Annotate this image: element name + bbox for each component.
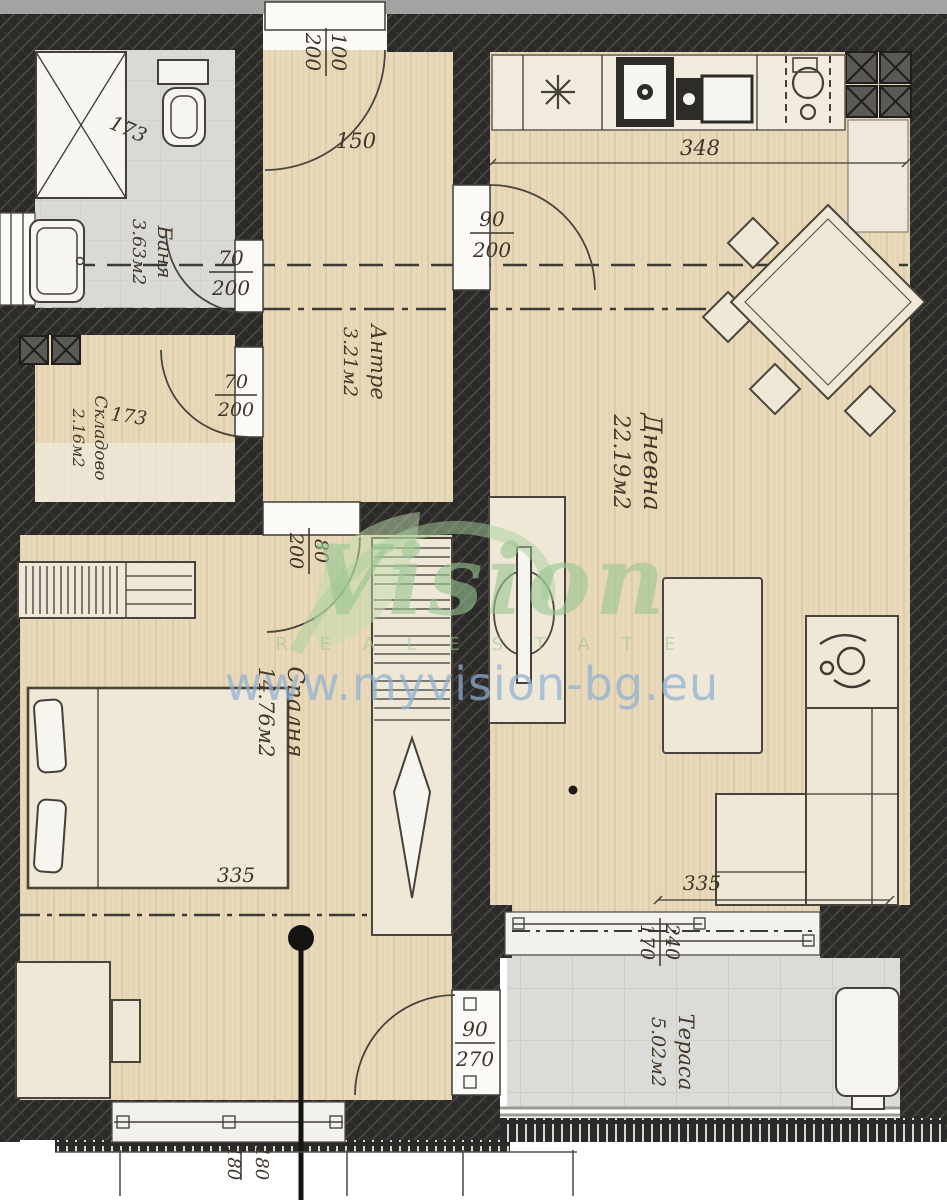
terrace-door-width: 90	[462, 1017, 488, 1041]
storage-floor-light	[30, 443, 235, 502]
counter-return	[848, 120, 908, 232]
terrace-bottom-wall	[500, 1118, 945, 1142]
desk-chair-icon	[112, 1000, 140, 1062]
fridge-icon	[786, 56, 830, 124]
sofa-dimension-text: 335	[683, 871, 721, 895]
bath-door-height: 200	[211, 276, 250, 300]
bath-area: 3.63м2	[128, 219, 149, 285]
pillow-icon	[34, 799, 67, 873]
bedroom-terrace-wall-lower	[452, 1095, 500, 1142]
storage-door-width: 70	[224, 371, 248, 393]
hall-living-wall-lower	[453, 290, 490, 502]
terrace-window-width: 240	[661, 923, 683, 960]
bedroom-window-height: 180	[251, 1146, 272, 1180]
bedroom-window	[112, 1102, 345, 1142]
bath-hall-wall-mid	[235, 312, 263, 347]
left-wall-upper	[0, 50, 35, 213]
bed-dimension: 335	[217, 863, 255, 887]
bed-icon	[28, 688, 288, 888]
terrace-area: 5.02м2	[647, 1017, 669, 1087]
storage-name: Складово	[90, 395, 110, 480]
living-name: Дневна	[638, 412, 667, 511]
hall-area: 3.21м2	[339, 327, 361, 397]
living-door-width: 90	[479, 207, 505, 231]
hall-living-wall-upper	[453, 14, 490, 185]
entry-door-leaf	[265, 2, 385, 30]
living-door-height: 200	[472, 238, 511, 262]
hall-floor	[237, 50, 453, 502]
hall-name: Антре	[366, 322, 390, 400]
floor-plan-drawing: Баня 3.63м2 Складово 2.16м2 Антре 3.21м2…	[0, 0, 947, 1200]
entry-door-dimension: 100 200	[301, 28, 351, 76]
bedroom-door-height: 200	[285, 532, 307, 569]
watermark-brand: Vision	[311, 524, 669, 637]
terrace-window-height: 170	[636, 924, 658, 960]
dresser-icon	[18, 562, 195, 618]
watermark-url: www.myvision-bg.eu	[225, 657, 719, 711]
living-area: 22.19м2	[608, 413, 633, 509]
storage-hall-wall-lower	[235, 437, 263, 502]
armchair-icon	[806, 616, 898, 708]
entry-door-width: 100	[327, 33, 351, 71]
hob-icon	[541, 75, 575, 109]
kitchen-dimension-text: 348	[680, 136, 720, 160]
bath-name: Баня	[153, 224, 177, 278]
terrace-name: Тераса	[674, 1014, 698, 1091]
pillow-icon	[34, 699, 67, 773]
bath-hall-wall-upper	[235, 50, 263, 240]
terrace-unit-icon	[836, 988, 899, 1096]
floor-point-marker	[569, 786, 578, 795]
terrace-unit-base	[852, 1096, 884, 1109]
storage-area: 2.16м2	[69, 407, 88, 467]
toilet-icon	[158, 60, 208, 146]
floor-plan-page: Баня 3.63м2 Складово 2.16м2 Антре 3.21м2…	[0, 0, 947, 1200]
terrace-right-wall	[900, 950, 947, 1142]
terrace-window-dimension: 240 170	[636, 918, 683, 966]
outside-top-strip	[0, 0, 947, 16]
storage-door-height: 200	[217, 399, 254, 421]
storage-bottom-wall	[0, 502, 263, 535]
bath-storage-divider-wall	[0, 308, 240, 335]
entry-door-height: 200	[301, 32, 325, 71]
entry-swing-dimension: 150	[336, 129, 376, 153]
top-wall-left	[0, 14, 263, 50]
terrace-items	[836, 988, 899, 1109]
terrace-door-height: 270	[455, 1047, 494, 1071]
sink-icon	[30, 220, 84, 302]
watermark-tagline: R E A L E S T A T E	[275, 634, 688, 655]
right-wall	[910, 50, 947, 950]
bath-door-width: 70	[218, 246, 244, 270]
